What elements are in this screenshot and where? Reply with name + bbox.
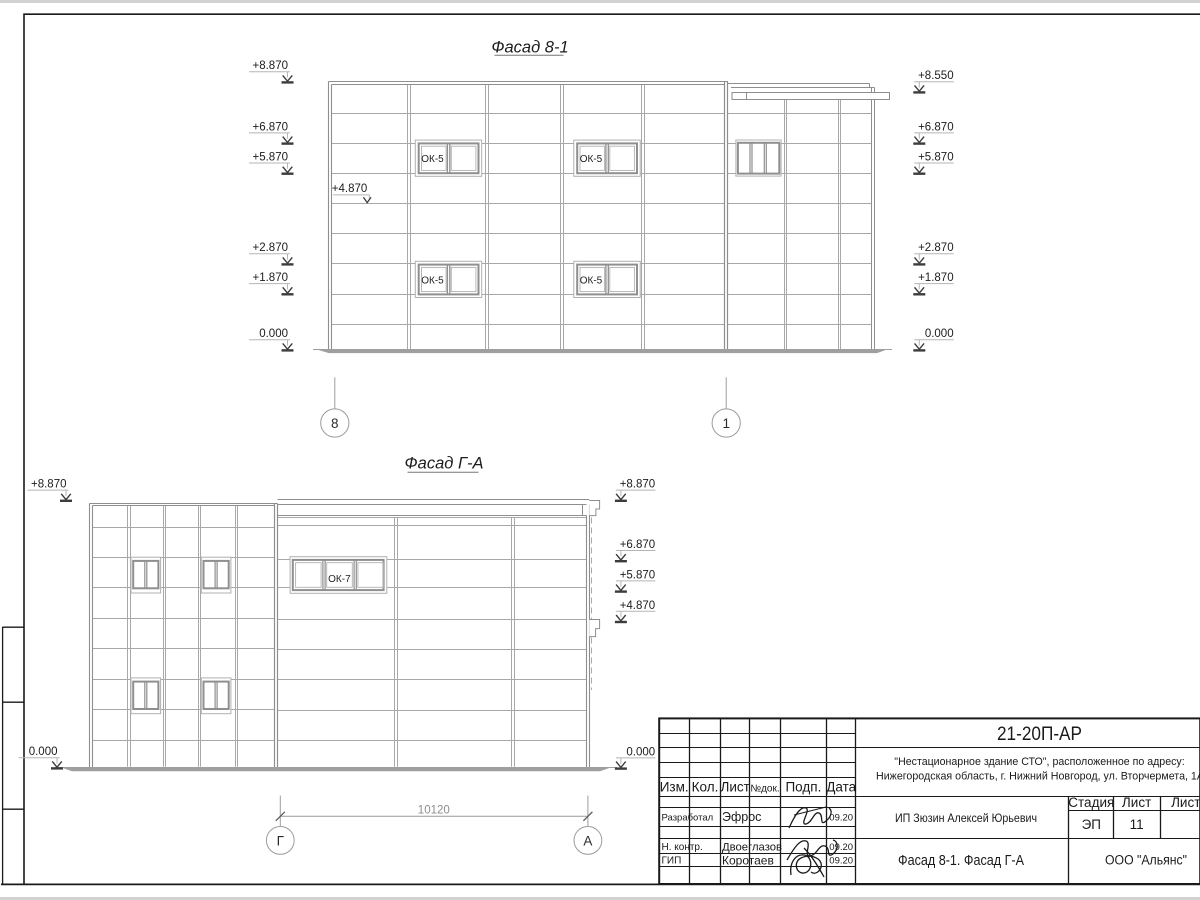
svg-text:Г: Г	[277, 833, 285, 848]
svg-text:Нижегородская область, г. Нижн: Нижегородская область, г. Нижний Новгоро…	[876, 770, 1200, 782]
svg-text:Изм.: Изм.	[660, 779, 689, 794]
svg-text:0.000: 0.000	[925, 328, 954, 340]
svg-text:11: 11	[1130, 817, 1144, 832]
svg-text:Фасад 8-1: Фасад 8-1	[491, 39, 568, 57]
svg-text:+8.870: +8.870	[253, 60, 289, 72]
svg-text:09.20: 09.20	[829, 842, 853, 853]
svg-text:+1.870: +1.870	[253, 272, 289, 284]
svg-text:Коротаев: Коротаев	[722, 853, 774, 867]
svg-text:Эфрос: Эфрос	[722, 810, 761, 824]
svg-text:ОК-7: ОК-7	[328, 574, 351, 585]
svg-text:№док.: №док.	[750, 783, 779, 794]
svg-text:ГИП: ГИП	[662, 856, 682, 867]
svg-text:09.20: 09.20	[829, 812, 853, 823]
svg-text:1: 1	[722, 416, 730, 431]
svg-text:Стадия: Стадия	[1068, 795, 1114, 810]
svg-text:+8.550: +8.550	[918, 70, 954, 82]
svg-text:+5.870: +5.870	[253, 152, 289, 164]
svg-text:ОК-5: ОК-5	[421, 154, 444, 165]
svg-text:+1.870: +1.870	[918, 272, 954, 284]
svg-text:ООО "Альянс": ООО "Альянс"	[1105, 852, 1187, 867]
svg-text:ОК-5: ОК-5	[421, 275, 444, 286]
svg-text:Лист: Лист	[721, 779, 750, 794]
svg-text:Листов: Листов	[1171, 795, 1200, 810]
svg-text:Н. контр.: Н. контр.	[662, 842, 703, 853]
svg-text:+8.870: +8.870	[31, 479, 67, 491]
svg-text:0.000: 0.000	[626, 746, 655, 758]
svg-text:+6.870: +6.870	[918, 121, 954, 133]
svg-text:+6.870: +6.870	[253, 121, 289, 133]
svg-text:+4.870: +4.870	[332, 183, 368, 195]
svg-text:8: 8	[331, 416, 339, 431]
svg-text:09.20: 09.20	[829, 856, 853, 867]
svg-text:Подп.: Подп.	[785, 779, 821, 794]
svg-text:+6.870: +6.870	[620, 539, 656, 551]
svg-text:+4.870: +4.870	[620, 600, 656, 612]
svg-text:Фасад 8-1. Фасад Г-А: Фасад 8-1. Фасад Г-А	[898, 853, 1024, 869]
svg-text:+5.870: +5.870	[918, 152, 954, 164]
svg-text:Кол.: Кол.	[692, 779, 719, 794]
svg-text:10120: 10120	[418, 805, 450, 817]
svg-text:"Нестационарное здание СТО", р: "Нестационарное здание СТО", расположенн…	[894, 756, 1184, 768]
svg-text:+2.870: +2.870	[253, 242, 289, 254]
svg-text:+8.870: +8.870	[620, 479, 656, 491]
svg-text:ОК-5: ОК-5	[580, 154, 603, 165]
svg-text:Разработал: Разработал	[662, 812, 714, 823]
svg-text:ЭП: ЭП	[1082, 817, 1101, 832]
svg-text:Дата: Дата	[826, 779, 856, 794]
svg-text:Двоеглазов: Двоеглазов	[722, 842, 782, 854]
svg-text:0.000: 0.000	[29, 746, 58, 758]
svg-text:Фасад Г-А: Фасад Г-А	[405, 455, 484, 473]
svg-text:0.000: 0.000	[259, 328, 288, 340]
svg-text:21-20П-АР: 21-20П-АР	[997, 724, 1082, 745]
svg-text:+2.870: +2.870	[918, 242, 954, 254]
svg-text:+5.870: +5.870	[620, 569, 656, 581]
svg-text:Лист: Лист	[1122, 795, 1151, 810]
svg-text:ОК-5: ОК-5	[580, 275, 603, 286]
svg-text:А: А	[583, 833, 592, 848]
svg-text:ИП Зюзин Алексей Юрьевич: ИП Зюзин Алексей Юрьевич	[895, 811, 1037, 825]
